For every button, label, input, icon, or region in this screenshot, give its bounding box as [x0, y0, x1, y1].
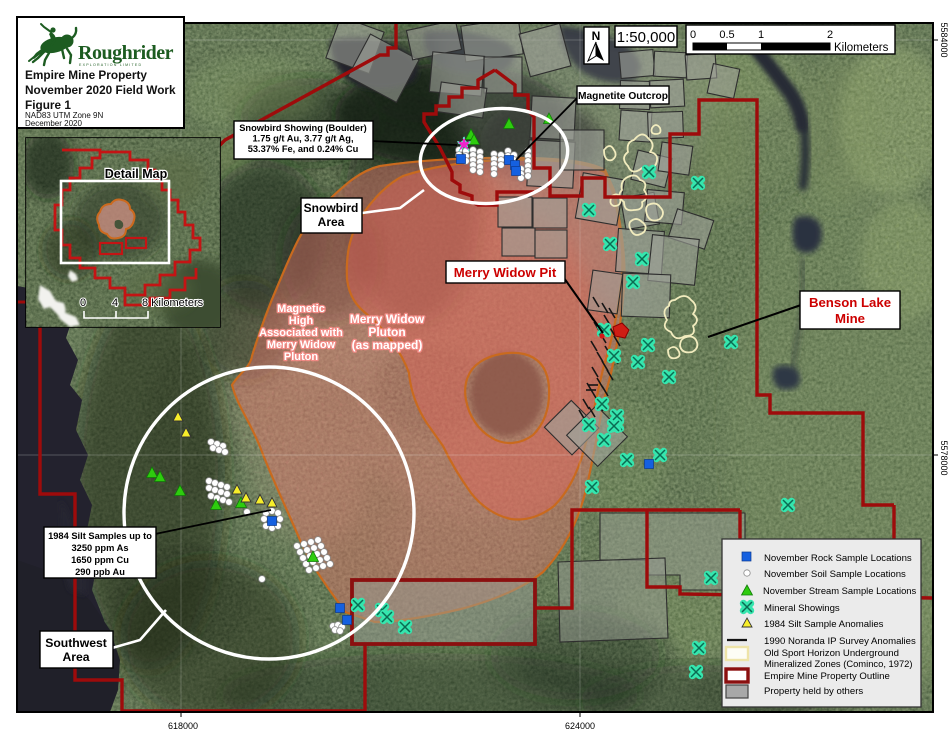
svg-text:Empire Mine Property: Empire Mine Property: [25, 68, 147, 82]
svg-text:November Rock Sample Locations: November Rock Sample Locations: [764, 553, 912, 564]
svg-text:November Stream Sample Locatio: November Stream Sample Locations: [763, 585, 917, 596]
svg-text:Kilometers: Kilometers: [834, 42, 889, 54]
svg-text:1: 1: [758, 29, 764, 41]
svg-text:Snowbird Showing (Boulder): Snowbird Showing (Boulder): [239, 123, 367, 133]
svg-text:Detail Map: Detail Map: [105, 167, 168, 181]
svg-text:Empire Mine Property Outline: Empire Mine Property Outline: [764, 671, 890, 682]
svg-text:Area: Area: [62, 650, 89, 664]
svg-text:Southwest: Southwest: [45, 636, 107, 650]
svg-text:290 ppb Au: 290 ppb Au: [75, 567, 125, 577]
svg-text:5578000: 5578000: [939, 440, 949, 475]
svg-text:53.37% Fe, and 0.24% Cu: 53.37% Fe, and 0.24% Cu: [248, 144, 359, 154]
svg-text:Magnetic: Magnetic: [277, 303, 325, 315]
svg-text:(as mapped): (as mapped): [352, 338, 423, 352]
svg-text:Merry Widow: Merry Widow: [267, 339, 336, 351]
svg-text:624000: 624000: [565, 721, 595, 731]
svg-text:Merry Widow Pit: Merry Widow Pit: [454, 265, 557, 280]
svg-text:EXPLORATION LIMITED: EXPLORATION LIMITED: [79, 63, 142, 67]
svg-text:3250 ppm As: 3250 ppm As: [71, 543, 128, 553]
svg-text:2: 2: [827, 29, 833, 41]
svg-text:1984 Silt Samples up to: 1984 Silt Samples up to: [48, 531, 152, 541]
svg-text:1984 Silt Sample Anomalies: 1984 Silt Sample Anomalies: [764, 619, 884, 630]
svg-text:1990 Noranda IP Survey Anomali: 1990 Noranda IP Survey Anomalies: [764, 636, 916, 647]
svg-text:1650 ppm Cu: 1650 ppm Cu: [71, 555, 129, 565]
svg-text:618000: 618000: [168, 721, 198, 731]
svg-text:Pluton: Pluton: [284, 351, 318, 363]
svg-text:Area: Area: [318, 215, 345, 229]
svg-text:Figure 1: Figure 1: [25, 98, 71, 112]
svg-text:Mine: Mine: [835, 311, 865, 326]
svg-text:0: 0: [690, 29, 696, 41]
svg-text:Magnetite Outcrop: Magnetite Outcrop: [578, 91, 668, 102]
svg-text:November 2020 Field Work: November 2020 Field Work: [25, 83, 176, 97]
svg-text:1.75 g/t Au, 3.77 g/t Ag,: 1.75 g/t Au, 3.77 g/t Ag,: [252, 134, 353, 144]
svg-text:0: 0: [80, 297, 86, 309]
svg-text:December 2020: December 2020: [25, 119, 82, 128]
svg-text:Benson Lake: Benson Lake: [809, 295, 891, 310]
svg-text:5584000: 5584000: [939, 22, 949, 57]
svg-text:November Soil Sample Locations: November Soil Sample Locations: [764, 569, 906, 580]
svg-text:Property held by others: Property held by others: [764, 686, 863, 697]
svg-text:Snowbird: Snowbird: [304, 201, 359, 215]
svg-text:N: N: [592, 29, 601, 43]
svg-text:Mineral Showings: Mineral Showings: [764, 603, 840, 614]
svg-text:High: High: [289, 315, 314, 327]
svg-text:4: 4: [112, 297, 118, 309]
svg-text:Merry Widow: Merry Widow: [350, 312, 425, 326]
svg-text:Roughrider: Roughrider: [78, 42, 174, 64]
svg-text:8 Kilometers: 8 Kilometers: [142, 297, 204, 309]
svg-text:Pluton: Pluton: [368, 325, 405, 339]
svg-text:Associated with: Associated with: [259, 327, 343, 339]
svg-text:0.5: 0.5: [719, 29, 734, 41]
svg-text:1:50,000: 1:50,000: [617, 29, 675, 46]
svg-text:Mineralized Zones (Cominco, 19: Mineralized Zones (Cominco, 1972): [764, 658, 913, 669]
